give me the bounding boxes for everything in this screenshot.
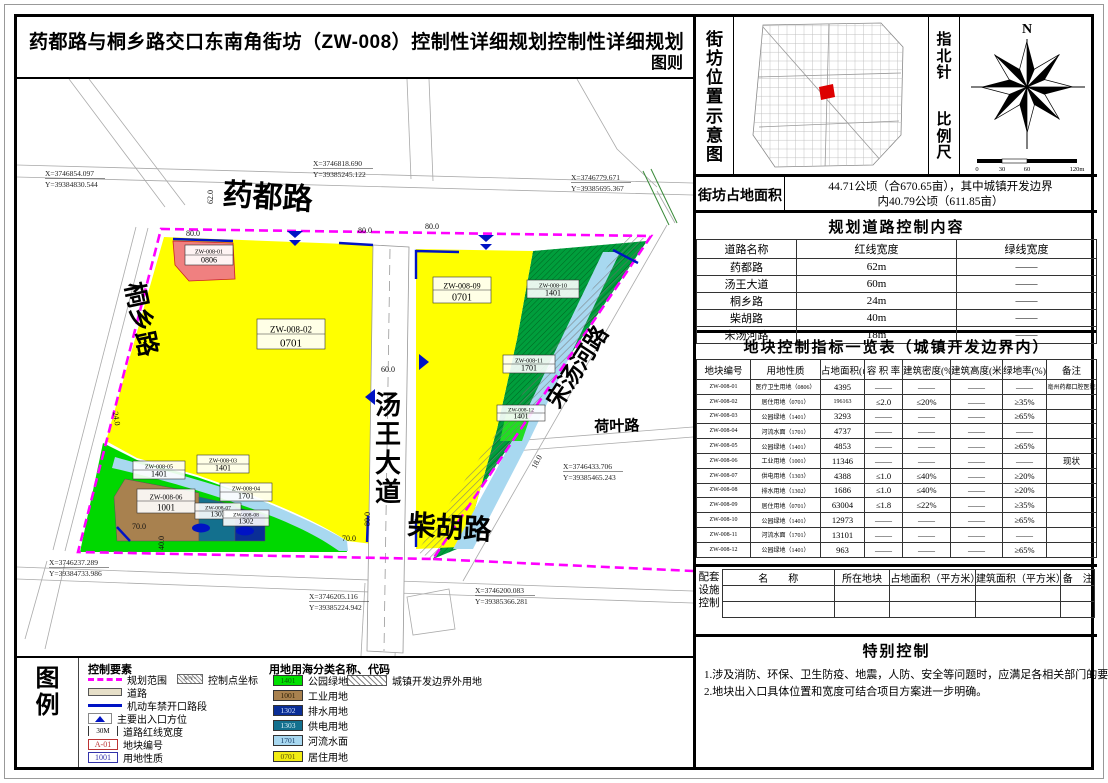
parcel-label-ZW-008-10: ZW-008-101401 — [527, 280, 579, 298]
coord-label-x: X=3746200.083 — [475, 586, 524, 595]
legend-landuse-0701: 0701居住用地 — [273, 750, 348, 762]
facility-table: 名 称所在地块占地面积（平方米）建筑面积（平方米）备 注 — [722, 569, 1095, 618]
dimension-label: 80.0 — [363, 512, 372, 526]
dimension-label: 70.0 — [342, 534, 356, 543]
table-cell: 公园绿地（1401） — [751, 513, 821, 528]
legend-landuse-1701: 1701河流水面 — [273, 735, 348, 747]
table-cell: ZW-008-08 — [697, 483, 751, 498]
table-cell: 居住用地（0701） — [751, 394, 821, 409]
table-cell: —— — [951, 380, 1003, 395]
sheet-kind-label: 图则 — [651, 49, 683, 73]
legend-outside-item: 城镇开发边界外用地 — [347, 674, 482, 686]
table-cell: —— — [1003, 527, 1047, 542]
legend-landuse-1001: 1001工业用地 — [273, 689, 348, 701]
coord-label-y: Y=39385224.942 — [309, 603, 362, 612]
table-cell: 占地面积(㎡) — [821, 360, 865, 380]
table-cell — [1047, 542, 1097, 557]
table-cell: 63004 — [821, 498, 865, 513]
table-cell — [1047, 527, 1097, 542]
table-cell — [1047, 424, 1097, 439]
landuse-swatch-1701: 1701 — [273, 735, 303, 746]
table-cell: 建筑面积（平方米） — [975, 570, 1061, 586]
dimension-label: 80.0 — [358, 226, 372, 235]
landuse-swatch-1302: 1302 — [273, 705, 303, 716]
table-cell: ZW-008-06 — [697, 453, 751, 468]
table-cell: ZW-008-10 — [697, 513, 751, 528]
table-cell: —— — [865, 380, 903, 395]
table-cell — [723, 586, 835, 602]
table-cell — [1061, 602, 1095, 618]
table-cell: 4737 — [821, 424, 865, 439]
landuse-swatch-1401: 1401 — [273, 675, 303, 686]
table-cell: 柴胡路 — [697, 310, 797, 327]
coord-label-x: X=3746433.706 — [563, 462, 612, 471]
entrance-swatch — [88, 713, 112, 724]
table-cell: 公园绿地（1401） — [751, 439, 821, 454]
table-cell: —— — [903, 453, 951, 468]
table-row: ZW-008-10公园绿地（1401）12973——————≥65% — [697, 513, 1097, 528]
table-cell — [1047, 468, 1097, 483]
table-cell: ≥65% — [1003, 439, 1047, 454]
parcel-label-ZW-008-11: ZW-008-111701 — [503, 355, 555, 373]
parcel-label-ZW-008-09: ZW-008-090701 — [433, 277, 491, 304]
coord-label-y: Y=39385465.243 — [563, 473, 616, 482]
table-row: ZW-008-08排水用地（1302）1686≤1.0≤40%——≥20% — [697, 483, 1097, 498]
table-cell — [975, 602, 1061, 618]
table-cell: —— — [865, 513, 903, 528]
table-cell: —— — [865, 542, 903, 557]
table-cell — [1061, 586, 1095, 602]
svg-text:0701: 0701 — [452, 293, 472, 304]
north-letter: N — [1022, 22, 1032, 37]
table-cell: ≥65% — [1003, 409, 1047, 424]
scale-tick: 60 — [1024, 166, 1031, 173]
legend-item-use-code: 1001用地性质 — [88, 751, 163, 763]
table-cell: —— — [865, 453, 903, 468]
table-cell: 3293 — [821, 409, 865, 424]
table-cell — [1047, 439, 1097, 454]
landuse-swatch-1001: 1001 — [273, 690, 303, 701]
table-cell: —— — [957, 276, 1097, 293]
legend-landuse-1302: 1302排水用地 — [273, 704, 348, 716]
parcel-label-ZW-008-06: ZW-008-061001 — [137, 489, 195, 513]
table-cell: 11346 — [821, 453, 865, 468]
table-cell: —— — [951, 542, 1003, 557]
table-cell: —— — [903, 513, 951, 528]
parcel-table-title: 地块控制指标一览表（城镇开发边界内） — [696, 333, 1097, 359]
parcel-label-ZW-008-05: ZW-008-051401 — [133, 461, 185, 479]
dimension-label: 80.0 — [186, 229, 200, 238]
table-cell: 工业用地（1001） — [751, 453, 821, 468]
redline-swatch: 30M — [88, 726, 118, 736]
page-title: 药都路与桐乡路交口东南角街坊（ZW-008）控制性详细规划控制性详细规划 — [29, 27, 684, 54]
table-cell — [834, 586, 890, 602]
road-control-section: 规划道路控制内容 道路名称红线宽度绿线宽度 药都路62m——汤王大道60m——桐… — [696, 213, 1097, 333]
svg-text:1701: 1701 — [521, 364, 537, 373]
table-cell: —— — [951, 424, 1003, 439]
table-cell: —— — [957, 293, 1097, 310]
title-block: 药都路与桐乡路交口东南角街坊（ZW-008）控制性详细规划控制性详细规划 图则 — [17, 17, 696, 79]
coord-label-y: Y=39385366.281 — [475, 597, 528, 606]
table-cell: —— — [957, 259, 1097, 276]
table-cell: ≥35% — [1003, 498, 1047, 513]
plot-code-swatch: A-01 — [88, 739, 118, 750]
table-cell: —— — [951, 483, 1003, 498]
table-cell: —— — [951, 468, 1003, 483]
legend-item-road: 道路 — [88, 686, 147, 698]
parcel-label-ZW-008-08: ZW-008-081302 — [223, 510, 269, 526]
table-cell — [1047, 394, 1097, 409]
coord-label-x: X=3746205.116 — [309, 592, 358, 601]
scale-label: 比例尺 — [936, 112, 951, 162]
table-row — [723, 602, 1095, 618]
table-cell: ≤1.0 — [865, 483, 903, 498]
table-cell: 绿线宽度 — [957, 240, 1097, 259]
legend-item-plot-code: A-01地块编号 — [88, 738, 163, 750]
table-cell: 4388 — [821, 468, 865, 483]
special-note: 1.涉及消防、环保、卫生防疫、地震，人防、安全等问题时，应满足各相关部门的要求。 — [704, 667, 1089, 684]
table-cell: 亳州药都口腔医院 — [1047, 380, 1097, 395]
table-cell — [1047, 409, 1097, 424]
dimension-label: 62.0 — [206, 190, 215, 204]
table-row: ZW-008-12公园绿地（1401）963——————≥65% — [697, 542, 1097, 557]
svg-text:1001: 1001 — [157, 503, 175, 513]
table-cell: —— — [957, 310, 1097, 327]
table-cell — [834, 602, 890, 618]
north-arrow-label: 指北针 — [936, 32, 951, 82]
table-cell: —— — [1003, 453, 1047, 468]
dimension-label: 60.0 — [381, 365, 395, 374]
road-label-tangwang: 道 — [375, 477, 401, 507]
use-code-swatch: 1001 — [88, 752, 118, 763]
table-cell: —— — [951, 453, 1003, 468]
table-cell — [1047, 498, 1097, 513]
coord-label-y: Y=39385245.122 — [313, 170, 366, 179]
parcel-label-ZW-008-12: ZW-008-121401 — [497, 405, 545, 421]
parcel-label-ZW-008-04: ZW-008-041701 — [220, 483, 272, 501]
table-cell: 所在地块 — [834, 570, 890, 586]
road-label-yaodu: 药都路 — [222, 178, 315, 216]
table-cell: 河流水面（1701） — [751, 424, 821, 439]
table-cell: —— — [903, 424, 951, 439]
table-row: ZW-008-07供电用地（1303）4388≤1.0≤40%——≥20% — [697, 468, 1097, 483]
coord-label-y: Y=39384733.986 — [49, 569, 102, 578]
table-cell: —— — [903, 439, 951, 454]
table-cell: 963 — [821, 542, 865, 557]
road-label-tangwang: 汤 — [375, 391, 401, 420]
svg-text:1401: 1401 — [215, 464, 231, 473]
table-cell: 60m — [797, 276, 957, 293]
table-cell: 备注 — [1047, 360, 1097, 380]
parcel-index-section: 地块控制指标一览表（城镇开发边界内） 地块编号用地性质占地面积(㎡)容 积 率建… — [696, 333, 1097, 567]
table-cell: ≥20% — [1003, 483, 1047, 498]
road-table: 道路名称红线宽度绿线宽度 药都路62m——汤王大道60m——桐乡路24m——柴胡… — [696, 239, 1097, 344]
control-point-swatch: X=Y= — [177, 674, 203, 684]
road-label-chaihu: 柴胡路 — [407, 509, 494, 546]
legend-landuse-1303: 1303供电用地 — [273, 720, 348, 732]
road-swatch — [88, 688, 122, 696]
table-row: ZW-008-11河流水面（1701）13101———————— — [697, 527, 1097, 542]
table-cell — [890, 586, 976, 602]
table-cell: —— — [903, 409, 951, 424]
table-row: ZW-008-09居住用地（0701）63004≤1.8≤22%——≥35% — [697, 498, 1097, 513]
table-cell: 公园绿地（1401） — [751, 542, 821, 557]
table-row: ZW-008-02居住用地（0701）196163≤2.0≤20%——≥35% — [697, 394, 1097, 409]
table-cell: ≤1.0 — [865, 468, 903, 483]
table-row: 柴胡路40m—— — [697, 310, 1097, 327]
plan-map[interactable]: 药都路桐乡路柴胡路宋汤河路荷叶路汤王大道X=3746854.097Y=39384… — [17, 79, 696, 658]
dimension-label: 18.0 — [530, 454, 545, 471]
table-cell: ≤22% — [903, 498, 951, 513]
special-control-section: 特别控制 1.涉及消防、环保、卫生防疫、地震，人防、安全等问题时，应满足各相关部… — [696, 637, 1097, 767]
table-cell: —— — [865, 409, 903, 424]
table-row: 汤王大道60m—— — [697, 276, 1097, 293]
table-cell: 占地面积（平方米） — [890, 570, 976, 586]
parcel-label-ZW-008-01: ZW-008-010806 — [185, 245, 233, 265]
svg-text:1302: 1302 — [239, 517, 254, 526]
svg-text:ZW-008-02: ZW-008-02 — [270, 325, 312, 335]
legend-control-point: X=Y= 控制点坐标 — [177, 673, 258, 685]
table-cell: ≤1.8 — [865, 498, 903, 513]
table-row: 桐乡路24m—— — [697, 293, 1097, 310]
legend-item-redline: 30M道路红线宽度 — [88, 725, 183, 737]
table-cell: —— — [951, 513, 1003, 528]
area-value: 44.71公顷（合670.65亩），其中城镇开发边界 内40.79公顷（611.… — [784, 177, 1097, 213]
table-row: ZW-008-05公园绿地（1401）4853——————≥65% — [697, 439, 1097, 454]
table-cell: 建筑密度(%) — [903, 360, 951, 380]
table-cell: ≤40% — [903, 468, 951, 483]
table-cell: 地块编号 — [697, 360, 751, 380]
facility-section: 配套设施控制 名 称所在地块占地面积（平方米）建筑面积（平方米）备 注 — [696, 567, 1097, 637]
special-title: 特别控制 — [696, 637, 1097, 663]
coord-label-y: Y=39384830.544 — [45, 180, 98, 189]
table-cell: 药都路 — [697, 259, 797, 276]
svg-text:1401: 1401 — [151, 470, 167, 479]
minimap-site-marker — [819, 84, 835, 100]
coord-label-x: X=3746237.289 — [49, 558, 98, 567]
table-row — [723, 586, 1095, 602]
table-cell: ≥65% — [1003, 513, 1047, 528]
boundary-swatch — [88, 678, 122, 681]
plan-map-svg: 药都路桐乡路柴胡路宋汤河路荷叶路汤王大道X=3746854.097Y=39384… — [17, 79, 693, 656]
table-cell: ≤20% — [903, 394, 951, 409]
coord-label-x: X=3746779.671 — [571, 173, 620, 182]
svg-text:0701: 0701 — [280, 338, 302, 350]
table-cell: ≤40% — [903, 483, 951, 498]
table-cell: 医疗卫生用地（0806） — [751, 380, 821, 395]
table-cell: —— — [865, 439, 903, 454]
table-cell: ZW-008-04 — [697, 424, 751, 439]
location-minimap[interactable] — [733, 17, 929, 177]
table-cell: —— — [865, 527, 903, 542]
table-cell — [890, 602, 976, 618]
coord-label-x: X=3746818.690 — [313, 159, 362, 168]
north-scale-labels: 指北针 比例尺 — [929, 17, 960, 177]
svg-text:1401: 1401 — [545, 289, 561, 298]
parcel-table: 地块编号用地性质占地面积(㎡)容 积 率建筑密度(%)建筑高度(米)绿地率(%)… — [696, 359, 1097, 558]
table-cell: 河流水面（1701） — [751, 527, 821, 542]
road-label-tangwang: 王 — [375, 420, 401, 449]
table-cell: 供电用地（1303） — [751, 468, 821, 483]
table-cell: ZW-008-09 — [697, 498, 751, 513]
road-label-heye: 荷叶路 — [594, 416, 641, 436]
legend-title: 图例 — [17, 658, 79, 767]
legend-panel: 图例 控制要素 规划范围道路机动车禁开口路段主要出入口方位30M道路红线宽度A-… — [17, 658, 696, 767]
table-cell: —— — [903, 542, 951, 557]
table-cell: 现状 — [1047, 453, 1097, 468]
table-cell: —— — [1003, 424, 1047, 439]
scale-tick: 120m — [1070, 166, 1085, 173]
table-cell: —— — [951, 498, 1003, 513]
table-cell: —— — [951, 527, 1003, 542]
legend-landuse-1401: 1401公园绿地 — [273, 674, 348, 686]
table-cell: ≥20% — [1003, 468, 1047, 483]
table-cell: 196163 — [821, 394, 865, 409]
location-map-label: 街坊位置示意图 — [696, 17, 734, 177]
table-cell: ≥65% — [1003, 542, 1047, 557]
table-cell: ZW-008-03 — [697, 409, 751, 424]
table-cell: —— — [1003, 380, 1047, 395]
table-cell: 13101 — [821, 527, 865, 542]
coord-label-x: X=3746854.097 — [45, 169, 94, 178]
area-label: 街坊占地面积 — [696, 177, 785, 213]
table-cell: ZW-008-12 — [697, 542, 751, 557]
legend-item-boundary: 规划范围 — [88, 673, 167, 685]
svg-text:ZW-008-09: ZW-008-09 — [443, 282, 480, 291]
info-panel: 街坊位置示意图 指北针 比例尺 N03060120m 街坊占地面积 44.71公… — [696, 17, 1097, 767]
table-cell: 红线宽度 — [797, 240, 957, 259]
table-cell: 40m — [797, 310, 957, 327]
table-cell: 名 称 — [723, 570, 835, 586]
table-row: ZW-008-04河流水面（1701）4737———————— — [697, 424, 1097, 439]
svg-text:1701: 1701 — [238, 492, 254, 501]
dimension-label: 40.0 — [157, 536, 166, 550]
table-row: ZW-008-01医疗卫生用地（0806）4395————————亳州药都口腔医… — [697, 380, 1097, 395]
table-cell: 桐乡路 — [697, 293, 797, 310]
table-cell: 62m — [797, 259, 957, 276]
facility-side-label: 配套设施控制 — [698, 571, 720, 610]
table-cell: 备 注 — [1061, 570, 1095, 586]
table-cell: —— — [903, 527, 951, 542]
table-cell: 4853 — [821, 439, 865, 454]
table-cell: 居住用地（0701） — [751, 498, 821, 513]
table-cell: 建筑高度(米) — [951, 360, 1003, 380]
parcel-label-ZW-008-02: ZW-008-020701 — [257, 319, 325, 350]
table-cell: ZW-008-11 — [697, 527, 751, 542]
table-cell: ZW-008-02 — [697, 394, 751, 409]
special-notes: 1.涉及消防、环保、卫生防疫、地震，人防、安全等问题时，应满足各相关部门的要求。… — [696, 663, 1097, 705]
table-row: ZW-008-06工业用地（1001）11346————————现状 — [697, 453, 1097, 468]
table-row: ZW-008-03公园绿地（1401）3293——————≥65% — [697, 409, 1097, 424]
table-cell: —— — [903, 380, 951, 395]
compass-cell: N03060120m — [959, 17, 1097, 177]
location-row: 街坊位置示意图 指北针 比例尺 N03060120m — [696, 17, 1097, 177]
svg-text:ZW-008-06: ZW-008-06 — [150, 494, 183, 502]
table-cell: 道路名称 — [697, 240, 797, 259]
noaccess-swatch — [88, 704, 122, 707]
table-cell: 4395 — [821, 380, 865, 395]
table-cell: —— — [865, 424, 903, 439]
table-cell: 绿地率(%) — [1003, 360, 1047, 380]
table-cell: —— — [951, 394, 1003, 409]
table-cell: ZW-008-05 — [697, 439, 751, 454]
table-cell: 1686 — [821, 483, 865, 498]
plan-sheet: 药都路与桐乡路交口东南角街坊（ZW-008）控制性详细规划控制性详细规划 图则 — [0, 0, 1108, 783]
area-row: 街坊占地面积 44.71公顷（合670.65亩），其中城镇开发边界 内40.79… — [696, 177, 1097, 213]
table-cell: 排水用地（1302） — [751, 483, 821, 498]
landuse-swatch-1303: 1303 — [273, 720, 303, 731]
table-cell: —— — [951, 439, 1003, 454]
scale-tick: 0 — [975, 166, 978, 173]
parcel-label-ZW-008-03: ZW-008-031401 — [197, 455, 249, 473]
outside-boundary-swatch — [347, 675, 387, 686]
table-cell: 容 积 率 — [865, 360, 903, 380]
table-cell: 24m — [797, 293, 957, 310]
table-cell — [975, 586, 1061, 602]
table-cell — [723, 602, 835, 618]
inner-frame: 药都路与桐乡路交口东南角街坊（ZW-008）控制性详细规划控制性详细规划 图则 — [14, 14, 1094, 770]
svg-text:0806: 0806 — [201, 256, 217, 265]
table-cell: 用地性质 — [751, 360, 821, 380]
table-cell: 12973 — [821, 513, 865, 528]
coord-label-y: Y=39385695.367 — [571, 184, 624, 193]
special-note: 2.地块出入口具体位置和宽度可结合项目方案进一步明确。 — [704, 684, 1089, 701]
table-cell: ZW-008-01 — [697, 380, 751, 395]
table-cell: 汤王大道 — [697, 276, 797, 293]
table-cell: ZW-008-07 — [697, 468, 751, 483]
road-table-title: 规划道路控制内容 — [696, 213, 1097, 239]
table-cell: —— — [951, 409, 1003, 424]
table-cell — [1047, 483, 1097, 498]
table-cell: ≤2.0 — [865, 394, 903, 409]
table-cell — [1047, 513, 1097, 528]
svg-text:1401: 1401 — [514, 412, 529, 421]
table-cell: 公园绿地（1401） — [751, 409, 821, 424]
table-cell: ≥35% — [1003, 394, 1047, 409]
dimension-label: 80.0 — [425, 222, 439, 231]
landuse-swatch-0701: 0701 — [273, 751, 303, 762]
legend-item-entrance: 主要出入口方位 — [88, 712, 187, 724]
scale-tick: 30 — [999, 166, 1006, 173]
table-row: 药都路62m—— — [697, 259, 1097, 276]
legend-item-noaccess: 机动车禁开口路段 — [88, 699, 207, 711]
dimension-label: 70.0 — [132, 522, 146, 531]
road-label-tangwang: 大 — [375, 449, 401, 478]
